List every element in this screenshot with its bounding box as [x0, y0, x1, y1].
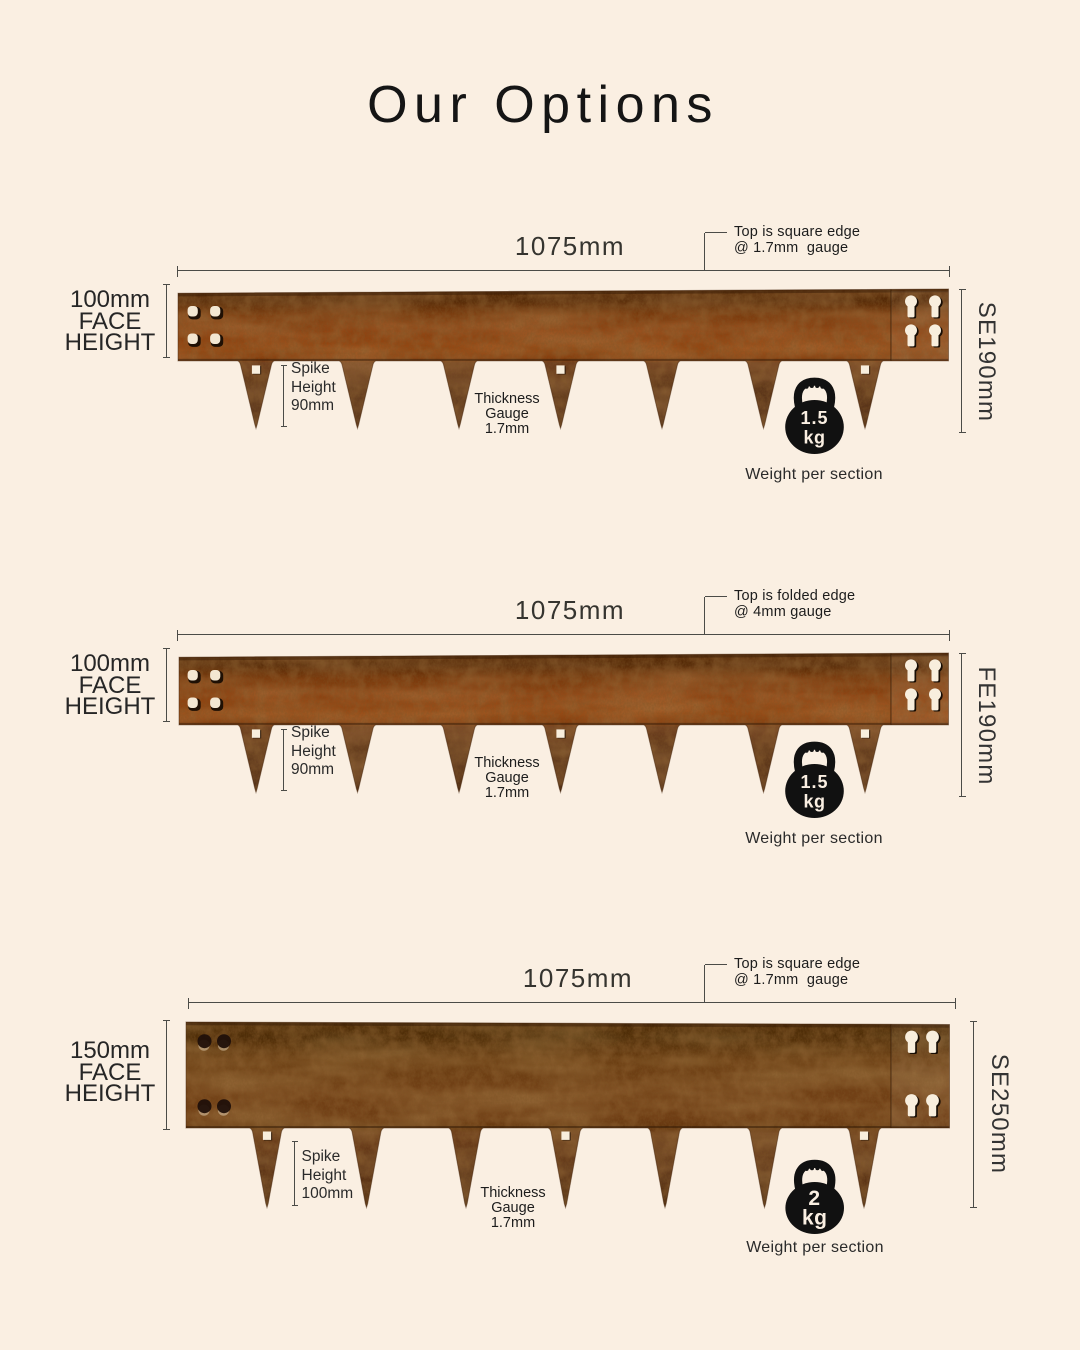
svg-text:1.5: 1.5	[800, 772, 828, 792]
svg-text:1.5: 1.5	[800, 408, 828, 428]
svg-text:kg: kg	[803, 792, 825, 812]
svg-text:kg: kg	[803, 428, 825, 448]
svg-text:kg: kg	[802, 1207, 828, 1230]
